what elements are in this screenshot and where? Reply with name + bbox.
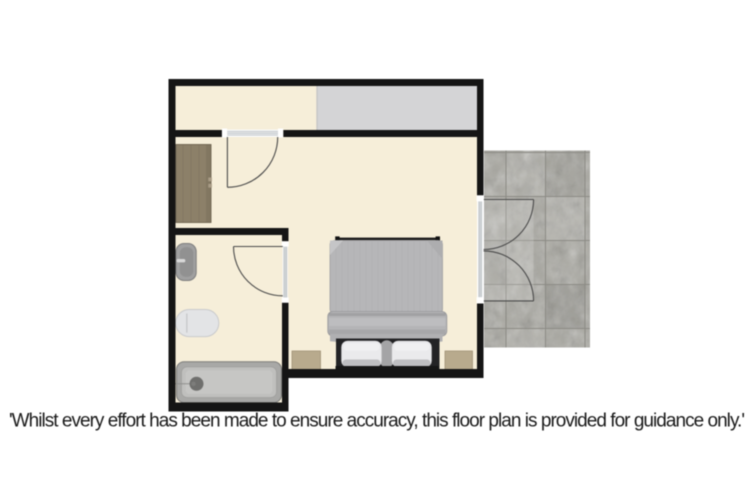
svg-text:'Whilst every effort has been: 'Whilst every effort has been made to en… <box>9 410 745 431</box>
